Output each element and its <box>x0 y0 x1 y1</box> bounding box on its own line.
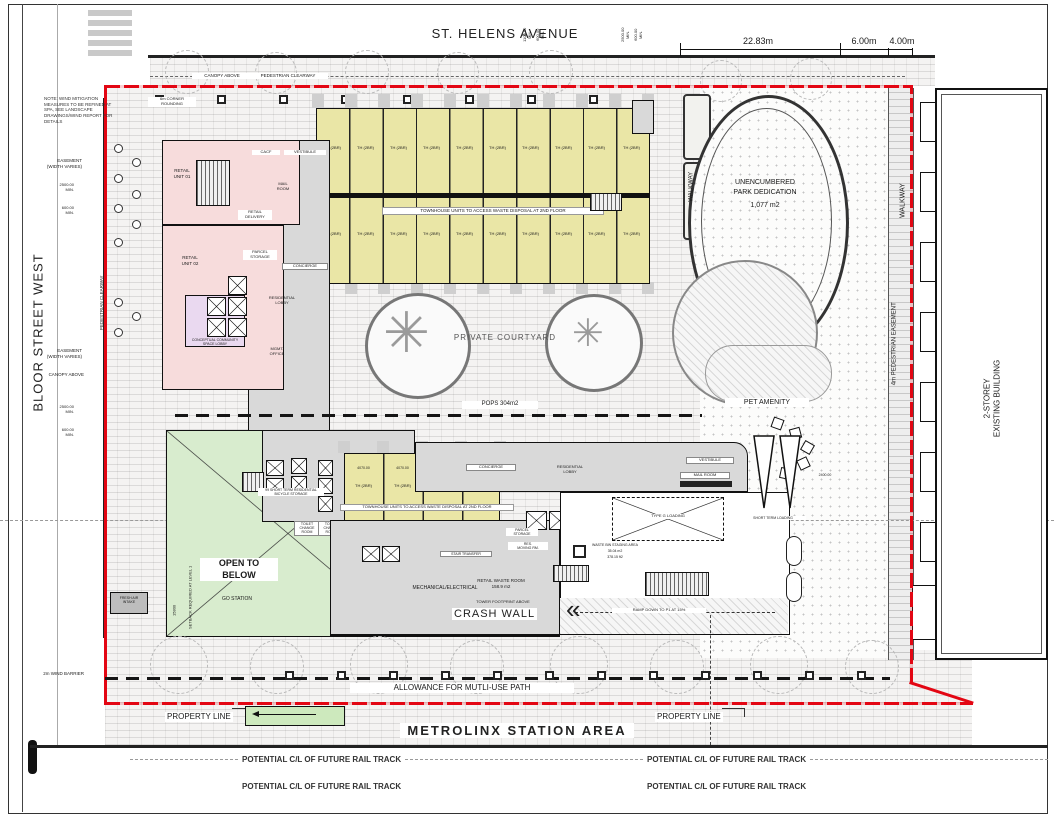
lth-dim: 4070.00 <box>344 466 383 470</box>
th-unit: TH (2BR) <box>481 232 514 237</box>
concierge-upper: CONCIERGE <box>282 263 328 270</box>
scale-bar-arrow <box>256 714 316 715</box>
property-line-east <box>910 85 913 683</box>
th-unit: TH (2BR) <box>514 146 547 151</box>
tree-grate <box>857 671 866 680</box>
tree-grate <box>285 671 294 680</box>
tree-canopy <box>150 636 208 694</box>
toilet-change-room-1: TOILET CHANGE ROOM <box>294 521 320 536</box>
service-stair <box>645 572 709 596</box>
cafe-table <box>114 328 123 337</box>
th-unit: TH (2BR) <box>481 146 514 151</box>
tree-canopy <box>250 640 304 694</box>
elevator <box>362 546 380 562</box>
building-bay <box>920 172 936 212</box>
tree-grate <box>805 671 814 680</box>
mgmt-office-label: MGMT. OFFICE <box>262 347 292 357</box>
tree-grate <box>441 671 450 680</box>
cacf-label: CACF <box>252 150 280 155</box>
tree-canopy <box>437 52 479 94</box>
scale-bar-arrowhead <box>252 711 259 717</box>
dim-2500-min-a: 2500.00 MIN. <box>621 18 631 52</box>
loading-dock-triangles <box>752 430 802 512</box>
building-bay <box>920 102 936 142</box>
ramp-chevron-icon: « <box>566 596 580 622</box>
mail-room-wall <box>680 481 732 487</box>
park-plaza-ext <box>705 345 832 402</box>
service-stair <box>553 565 589 582</box>
retail-unit-01: RETAIL UNIT 01 <box>162 168 202 179</box>
tree-canopy <box>650 640 704 694</box>
ramp-area <box>560 598 788 634</box>
park-label-1: UNENCUMBERED <box>715 178 815 187</box>
elevator <box>318 460 333 476</box>
scale-bar <box>245 706 345 726</box>
tree-grate <box>493 671 502 680</box>
label-corner-rounding: 6m CORNER ROUNDING <box>148 97 196 107</box>
setback-note: SETBACK REQUIRED AT LEVEL 1 <box>189 541 194 653</box>
parcel-storage-upper: PARCEL STORAGE <box>243 250 277 260</box>
frame-inner-line <box>22 4 23 812</box>
building-bay <box>920 452 936 492</box>
park-area: 1,077 m2 <box>715 201 815 210</box>
planter-pill <box>786 536 802 566</box>
th-unit: TH (2BR) <box>382 232 415 237</box>
lth-waste-note: TOWNHOUSE UNITS TO ACCESS WASTE DISPOSAL… <box>340 504 514 511</box>
elevator <box>207 318 226 337</box>
th-stubs-top <box>312 94 654 108</box>
label-pedestrian-clearway: PEDESTRIAN CLEARWAY <box>248 73 328 79</box>
crash-wall-line <box>330 634 560 637</box>
retail-stair <box>196 160 230 206</box>
rail-track-label-2: POTENTIAL C/L OF FUTURE RAIL TRACK <box>645 755 808 765</box>
building-bay <box>912 585 936 640</box>
street-st-helens: ST. HELENS AVENUE <box>400 26 610 41</box>
short-term-loading-label: SHORT TERM LOADING <box>740 516 806 520</box>
rail-edge-line <box>30 745 1048 748</box>
park-label-2: PARK DEDICATION <box>715 188 815 197</box>
th-unit: TH (2BR) <box>613 146 650 151</box>
cafe-table <box>114 238 123 247</box>
crash-wall-label: CRASH WALL <box>452 608 537 620</box>
bike-storage-label: 99 SHORT TERM RESIDENTIAL BICYCLE STORAG… <box>258 488 324 496</box>
cafe-table <box>114 144 123 153</box>
courtyard-tree-icon: ✳ <box>383 305 430 361</box>
label-canopy-above: CANOPY ABOVE <box>192 73 252 79</box>
res-lobby-upper: RESIDENTIAL LOBBY <box>262 296 302 306</box>
rail-track-label-1: POTENTIAL C/L OF FUTURE RAIL TRACK <box>240 755 403 765</box>
street-bloor: BLOOR STREET WEST <box>31 250 46 416</box>
type-g-label: TYPE G LOADING <box>634 514 702 519</box>
th-unit: TH (2BR) <box>448 146 481 151</box>
ramp-label: RAMP DOWN TO P1 AT 15% <box>612 608 706 613</box>
easement-label-1: EASEMENT (WIDTH VARIES) <box>30 158 82 169</box>
cafe-table <box>114 204 123 213</box>
th-unit: TH (2BR) <box>547 146 580 151</box>
metrolinx-label: METROLINX STATION AREA <box>400 723 634 738</box>
tree-grate <box>545 671 554 680</box>
waste-bin-a2: 378.15 ft2 <box>586 555 644 559</box>
elevator <box>291 458 307 474</box>
th-unit: TH (2BR) <box>514 232 547 237</box>
th-unit: TH (2BR) <box>613 232 650 237</box>
retail-delivery-label: RETAIL DELIVERY <box>238 210 272 220</box>
min-2500-left-2: 2500.00 MIN. <box>40 405 74 415</box>
res-lobby-lower: RESIDENTIAL LOBBY <box>548 465 592 475</box>
th-waste-note: TOWNHOUSE UNITS TO ACCESS WASTE DISPOSAL… <box>382 207 604 215</box>
elevator <box>228 297 247 316</box>
tree-grate <box>701 671 710 680</box>
cafe-table <box>114 298 123 307</box>
property-line-west <box>104 85 107 705</box>
multi-use-path-label: ALLOWANCE FOR MUTLI-USE PATH <box>350 683 574 693</box>
stair-transfer-label: STAIR TRANSFER <box>440 551 492 557</box>
fresh-air-intake-label: FRESH AIR INTAKE <box>110 596 148 604</box>
open-to-below-label: OPEN TO BELOW <box>200 558 278 581</box>
building-bay <box>920 522 936 562</box>
setback-dim: 15800 <box>173 595 178 625</box>
tree-grate <box>649 671 658 680</box>
pedestrian-clearway-left: PEDESTRIAN CLEARWAY <box>99 261 105 345</box>
pet-amenity-label: PET AMENITY <box>725 398 809 407</box>
dim-22-83: 22.83m <box>718 36 798 48</box>
elevator <box>228 276 247 295</box>
dim-4-00: 4.00m <box>880 36 924 48</box>
community-lobby-label: CONCEPTUAL COMMUNITY SPACE LOBBY <box>188 338 242 346</box>
min-600-left-1: 600.00 MIN. <box>40 206 74 216</box>
tree-canopy <box>845 640 899 694</box>
property-line-label-east: PROPERTY LINE <box>655 712 723 722</box>
cafe-table <box>132 158 141 167</box>
tree-canopy <box>750 636 808 694</box>
th-row1-labels: TH (2BR) TH (2BR) TH (2BR) TH (2BR) TH (… <box>316 146 650 154</box>
shaft-box <box>632 100 654 134</box>
cafe-table <box>114 174 123 183</box>
dim-600-min-a: 600.00 MIN. <box>536 18 546 52</box>
concierge-lower: CONCIERGE <box>466 464 516 471</box>
th-row2-labels: TH (2BR) TH (2BR) TH (2BR) TH (2BR) TH (… <box>316 232 650 240</box>
site-plan: ST. HELENS AVENUE BLOOR STREET WEST 22.8… <box>0 0 1054 817</box>
th-unit: TH (2BR) <box>415 146 448 151</box>
elevator <box>318 496 333 512</box>
type-g-loading-area <box>612 497 724 541</box>
tree-grate <box>597 671 606 680</box>
res-moving-label: RES. MOVING RM. <box>508 542 548 550</box>
th-unit: TH (2BR) <box>349 146 382 151</box>
th-stair <box>590 193 622 211</box>
cafe-table <box>132 312 141 321</box>
th-unit: TH (2BR) <box>547 232 580 237</box>
crosswalk <box>88 10 132 60</box>
easement-label-2: EASEMENT (WIDTH VARIES) <box>30 348 82 359</box>
elevator <box>228 318 247 337</box>
tree-grate <box>389 671 398 680</box>
wind-note: NOTE: WIND MITIGATION MEASURES TO BE REF… <box>44 96 120 124</box>
th-unit: TH (2BR) <box>415 232 448 237</box>
property-line-south <box>105 702 973 705</box>
walkway-label-west: WALKWAY <box>688 162 696 212</box>
tower-footprint-label: TOWER FOOTPRINT ABOVE <box>466 600 540 605</box>
go-station-label: GO STATION <box>202 596 272 602</box>
tree-grate <box>337 671 346 680</box>
cafe-table <box>132 220 141 229</box>
property-line-north <box>105 85 912 88</box>
building-bay <box>920 242 936 282</box>
walkway-label-east: WALKWAY <box>898 171 907 231</box>
th-unit: TH (2BR) <box>382 146 415 151</box>
dim-600-min-b: 600.00 MIN. <box>634 18 644 52</box>
canopy-above-left: CANOPY ABOVE <box>36 372 84 378</box>
building-bay <box>920 382 936 422</box>
elevator <box>266 460 284 476</box>
property-leader-east <box>722 708 745 717</box>
waste-bin-a1: 35.04 m2 <box>586 549 644 553</box>
dim-line <box>680 49 913 50</box>
th-unit: TH (2BR) <box>580 146 613 151</box>
th-unit: TH (2BR) <box>448 232 481 237</box>
tree-grate <box>279 95 288 104</box>
wind-barrier-label: 2m WIND BARRIER <box>32 671 84 677</box>
building-bay <box>920 312 936 352</box>
min-2500-left-1: 2500.00 MIN. <box>40 183 74 193</box>
vestibule-label-upper: VESTIBULE <box>284 150 326 155</box>
waste-bin-label: WASTE BIN STAGING AREA <box>586 543 644 547</box>
th-unit: TH (2BR) <box>580 232 613 237</box>
existing-building-label: 2-STOREY EXISTING BUILDING <box>983 338 1004 458</box>
drive-aisle-line <box>710 615 711 745</box>
tree-grate <box>753 671 762 680</box>
waste-icon <box>573 545 586 558</box>
rail-track-label-3: POTENTIAL C/L OF FUTURE RAIL TRACK <box>240 782 403 792</box>
pops-boundary <box>175 414 702 417</box>
rail-track-label-4: POTENTIAL C/L OF FUTURE RAIL TRACK <box>645 782 808 792</box>
elevator <box>382 546 400 562</box>
cafe-table <box>132 190 141 199</box>
pops-label: POPS 304m2 <box>462 401 538 409</box>
parcel-storage-lower: PARCEL STORAGE <box>506 528 538 536</box>
retail-waste-label: RETAIL WASTE ROOM 158.9 m2 <box>466 578 536 589</box>
property-line-label-west: PROPERTY LINE <box>165 712 233 722</box>
tree-canopy <box>790 58 832 100</box>
vestibule-lower: VESTIBULE <box>686 457 734 464</box>
min-600-left-2: 600.00 MIN. <box>40 428 74 438</box>
loading-dim: 2400.00 <box>808 473 842 477</box>
th-unit: TH (2BR) <box>344 484 383 489</box>
elevator <box>207 297 226 316</box>
retail-unit-02: RETAIL UNIT 02 <box>168 255 212 266</box>
mail-room-upper: MAIL ROOM <box>272 182 294 192</box>
tree-grate <box>217 95 226 104</box>
th-unit: TH (2BR) <box>349 232 382 237</box>
planter-pill <box>786 572 802 602</box>
dim-1100-min: 1100.00 MIN. <box>523 18 533 52</box>
pedestrian-easement-label: 4m PEDESTRIAN EASEMENT <box>891 289 899 399</box>
mail-room-lower: MAIL ROOM <box>680 472 730 479</box>
private-courtyard-label: PRIVATE COURTYARD <box>430 333 580 343</box>
